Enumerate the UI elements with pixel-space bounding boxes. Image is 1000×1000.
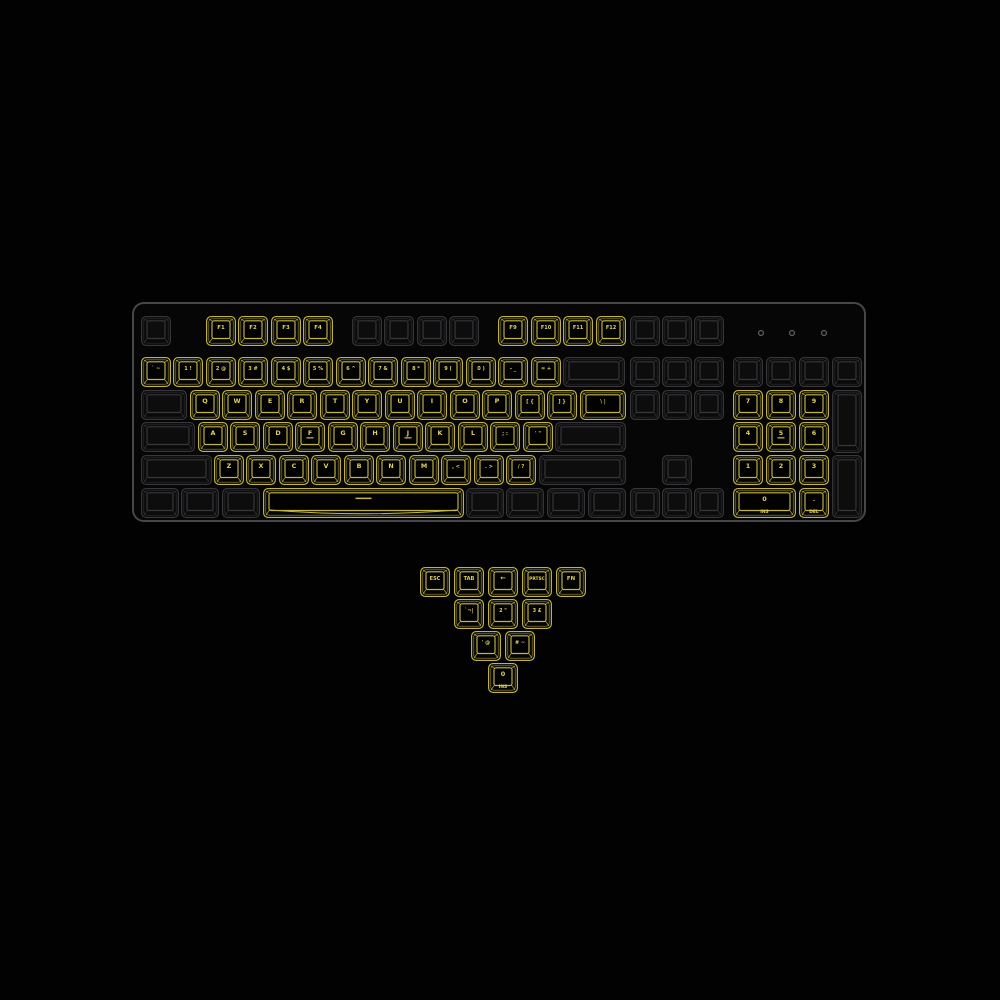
key-slash-legend: / ? bbox=[518, 464, 525, 470]
key-np-minus bbox=[833, 358, 862, 387]
key-semicolon: ; : bbox=[491, 423, 520, 452]
key-np0-sub-legend: INS bbox=[760, 509, 768, 515]
key-f9: F9 bbox=[499, 317, 528, 346]
key-space bbox=[264, 489, 464, 518]
key-x-grave-iso-legend: `¬| bbox=[465, 608, 474, 614]
key-np-dot-legend: . bbox=[813, 495, 815, 503]
key-grave: ` ~ bbox=[142, 358, 171, 387]
key-rbracket-legend: ] } bbox=[558, 399, 566, 405]
key-3: 3 # bbox=[239, 358, 268, 387]
key-1-legend: 1 ! bbox=[184, 366, 192, 372]
key-0: 0 ) bbox=[467, 358, 496, 387]
key-2-legend: 2 @ bbox=[216, 366, 226, 372]
key-x-grave-iso: `¬| bbox=[455, 600, 484, 629]
key-u-legend: U bbox=[397, 397, 402, 405]
key-e-legend: E bbox=[268, 397, 272, 405]
key-np8-legend: 8 bbox=[779, 397, 784, 405]
key-f2-legend: F2 bbox=[249, 325, 257, 331]
key-d-legend: D bbox=[275, 429, 280, 437]
key-f1-legend: F1 bbox=[217, 325, 225, 331]
key-backslash-legend: \ | bbox=[600, 399, 606, 405]
key-h-legend: H bbox=[372, 429, 377, 437]
key-x-hash-iso-legend: # ~ bbox=[515, 640, 525, 646]
key-w-legend: W bbox=[233, 397, 240, 405]
key-equals: = + bbox=[532, 358, 561, 387]
key-j: J bbox=[394, 423, 423, 452]
key-g-legend: G bbox=[340, 429, 345, 437]
key-c-legend: C bbox=[292, 462, 297, 470]
key-f10: F10 bbox=[532, 317, 561, 346]
key-z: Z bbox=[215, 456, 244, 485]
key-7: 7 & bbox=[369, 358, 398, 387]
key-equals-legend: = + bbox=[541, 366, 551, 372]
key-h: H bbox=[361, 423, 390, 452]
key-v: V bbox=[312, 456, 341, 485]
key-np5: 5 bbox=[767, 423, 796, 452]
key-f12: F12 bbox=[597, 317, 626, 346]
key-backslash: \ | bbox=[581, 391, 626, 420]
key-x-prtsc-legend: PRTSC bbox=[529, 576, 545, 582]
key-np2-legend: 2 bbox=[779, 462, 783, 470]
key-np2: 2 bbox=[767, 456, 796, 485]
key-np6: 6 bbox=[800, 423, 829, 452]
key-n: N bbox=[377, 456, 406, 485]
key-k: K bbox=[426, 423, 455, 452]
key-minus: - _ bbox=[499, 358, 528, 387]
key-f: F bbox=[296, 423, 325, 452]
key-rfn bbox=[507, 489, 544, 518]
key-x-2-iso-legend: 2 " bbox=[499, 608, 507, 614]
key-prtsc bbox=[631, 317, 660, 346]
key-np0-legend: 0 bbox=[762, 495, 767, 503]
key-np1: 1 bbox=[734, 456, 763, 485]
key-rbracket: ] } bbox=[548, 391, 577, 420]
key-b-legend: B bbox=[357, 462, 362, 470]
key-f6 bbox=[385, 317, 414, 346]
key-s: S bbox=[231, 423, 260, 452]
key-f11: F11 bbox=[564, 317, 593, 346]
key-enter bbox=[556, 423, 626, 452]
key-o-legend: O bbox=[462, 397, 468, 405]
key-rshift bbox=[540, 456, 626, 485]
key-np-div bbox=[767, 358, 796, 387]
key-q-legend: Q bbox=[202, 397, 208, 405]
key-np9: 9 bbox=[800, 391, 829, 420]
key-4-legend: 4 $ bbox=[282, 366, 291, 372]
key-v-legend: V bbox=[324, 462, 329, 470]
key-x-fn-legend: FN bbox=[567, 576, 576, 582]
key-lbracket-legend: [ { bbox=[526, 399, 534, 405]
key-f4: F4 bbox=[304, 317, 333, 346]
key-f4-legend: F4 bbox=[314, 325, 322, 331]
key-np6-legend: 6 bbox=[812, 429, 817, 437]
key-pgdn bbox=[695, 391, 724, 420]
key-3-legend: 3 # bbox=[248, 366, 257, 372]
key-np4-legend: 4 bbox=[746, 429, 751, 437]
key-period: . > bbox=[475, 456, 504, 485]
key-x: X bbox=[247, 456, 276, 485]
key-g: G bbox=[329, 423, 358, 452]
key-np1-legend: 1 bbox=[746, 462, 750, 470]
key-f9-legend: F9 bbox=[509, 325, 517, 331]
key-comma: , < bbox=[442, 456, 471, 485]
key-insert bbox=[631, 358, 660, 387]
key-tab bbox=[142, 391, 187, 420]
key-r-legend: R bbox=[300, 397, 305, 405]
key-1: 1 ! bbox=[174, 358, 203, 387]
key-z-legend: Z bbox=[227, 462, 232, 470]
key-np4: 4 bbox=[734, 423, 763, 452]
key-7-legend: 7 & bbox=[378, 366, 388, 372]
key-np-dot: .DEL bbox=[800, 489, 829, 518]
key-r: R bbox=[288, 391, 317, 420]
key-a: A bbox=[199, 423, 228, 452]
key-lwin bbox=[182, 489, 219, 518]
key-np-dot-sub-legend: DEL bbox=[809, 509, 819, 515]
key-m: M bbox=[410, 456, 439, 485]
key-grave-legend: ` ~ bbox=[152, 366, 160, 372]
key-9: 9 ( bbox=[434, 358, 463, 387]
key-np5-legend: 5 bbox=[779, 429, 783, 437]
key-b: B bbox=[345, 456, 374, 485]
key-x-backspace: ← bbox=[489, 568, 518, 597]
key-lctrl bbox=[142, 489, 179, 518]
key-comma-legend: , < bbox=[452, 464, 460, 470]
key-scrlk bbox=[663, 317, 692, 346]
key-f2: F2 bbox=[239, 317, 268, 346]
key-x-0-ins-sub-legend: INS bbox=[499, 684, 507, 690]
key-f-legend: F bbox=[308, 429, 312, 437]
key-u: U bbox=[386, 391, 415, 420]
key-menu bbox=[548, 489, 585, 518]
key-rctrl bbox=[589, 489, 626, 518]
key-np0: 0INS bbox=[734, 489, 796, 518]
key-pgup bbox=[695, 358, 724, 387]
key-x-fn: FN bbox=[557, 568, 586, 597]
key-y-legend: Y bbox=[364, 397, 370, 405]
key-np7: 7 bbox=[734, 391, 763, 420]
key-t-legend: T bbox=[333, 397, 338, 405]
key-x-quote-iso-legend: ' @ bbox=[482, 640, 490, 646]
key-np9-legend: 9 bbox=[812, 397, 817, 405]
key-np3: 3 bbox=[800, 456, 829, 485]
key-f1: F1 bbox=[207, 317, 236, 346]
key-x-0-ins: 0INS bbox=[489, 664, 518, 693]
key-f12-legend: F12 bbox=[606, 325, 617, 331]
key-8: 8 * bbox=[402, 358, 431, 387]
key-period-legend: . > bbox=[485, 464, 493, 470]
key-q: Q bbox=[191, 391, 220, 420]
key-end bbox=[663, 391, 692, 420]
key-lshift bbox=[142, 456, 212, 485]
key-np-enter bbox=[833, 456, 862, 518]
key-x-prtsc: PRTSC bbox=[523, 568, 552, 597]
key-delete bbox=[631, 391, 660, 420]
key-0-legend: 0 ) bbox=[477, 366, 485, 372]
key-p: P bbox=[483, 391, 512, 420]
key-pause bbox=[695, 317, 724, 346]
key-minus-legend: - _ bbox=[510, 366, 517, 372]
key-l: L bbox=[459, 423, 488, 452]
key-p-legend: P bbox=[495, 397, 500, 405]
key-np3-legend: 3 bbox=[812, 462, 816, 470]
key-x-tab-legend: TAB bbox=[464, 576, 475, 582]
key-x-3-iso: 3 £ bbox=[523, 600, 552, 629]
key-o: O bbox=[451, 391, 480, 420]
key-x-esc-legend: ESC bbox=[430, 576, 441, 582]
keyboard-illustration: F1F2F3F4F9F10F11F12` ~1 !2 @3 #4 $5 %6 ^… bbox=[0, 0, 1000, 1000]
key-f3: F3 bbox=[272, 317, 301, 346]
key-d: D bbox=[264, 423, 293, 452]
key-np-plus bbox=[833, 391, 862, 453]
key-f7 bbox=[418, 317, 447, 346]
key-y: Y bbox=[353, 391, 382, 420]
key-home bbox=[663, 358, 692, 387]
key-x-3-iso-legend: 3 £ bbox=[533, 608, 542, 614]
key-right bbox=[695, 489, 724, 518]
key-down bbox=[663, 489, 692, 518]
key-4: 4 $ bbox=[272, 358, 301, 387]
product-render: F1F2F3F4F9F10F11F12` ~1 !2 @3 #4 $5 %6 ^… bbox=[0, 0, 1000, 1000]
key-x-tab: TAB bbox=[455, 568, 484, 597]
key-6-legend: 6 ^ bbox=[346, 366, 355, 372]
key-lbracket: [ { bbox=[516, 391, 545, 420]
key-esc bbox=[142, 317, 171, 346]
key-6: 6 ^ bbox=[337, 358, 366, 387]
key-l-legend: L bbox=[471, 429, 475, 437]
key-f8 bbox=[450, 317, 479, 346]
key-numlock bbox=[734, 358, 763, 387]
key-t: T bbox=[321, 391, 350, 420]
key-f11-legend: F11 bbox=[573, 325, 584, 331]
key-np-mul bbox=[800, 358, 829, 387]
key-np7-legend: 7 bbox=[746, 397, 750, 405]
key-5: 5 % bbox=[304, 358, 333, 387]
key-x-esc: ESC bbox=[421, 568, 450, 597]
key-j-legend: J bbox=[406, 429, 409, 437]
key-quote: ' " bbox=[524, 423, 553, 452]
key-s-legend: S bbox=[243, 429, 248, 437]
key-i: I bbox=[418, 391, 447, 420]
key-backspace bbox=[564, 358, 625, 387]
key-m-legend: M bbox=[421, 462, 427, 470]
key-x-hash-iso: # ~ bbox=[506, 632, 535, 661]
key-a-legend: A bbox=[211, 429, 216, 437]
key-5-legend: 5 % bbox=[313, 366, 323, 372]
key-x-0-ins-legend: 0 bbox=[501, 670, 506, 678]
key-caps bbox=[142, 423, 195, 452]
key-f10-legend: F10 bbox=[541, 325, 552, 331]
key-x-2-iso: 2 " bbox=[489, 600, 518, 629]
key-left bbox=[631, 489, 660, 518]
key-x-quote-iso: ' @ bbox=[472, 632, 501, 661]
extra-keycaps: ESCTAB←PRTSCFN`¬|2 "3 £' @# ~0INS bbox=[421, 568, 586, 693]
key-n-legend: N bbox=[388, 462, 393, 470]
key-quote-legend: ' " bbox=[535, 431, 541, 437]
key-f3-legend: F3 bbox=[282, 325, 290, 331]
key-np8: 8 bbox=[767, 391, 796, 420]
key-ralt bbox=[467, 489, 504, 518]
key-semicolon-legend: ; : bbox=[502, 431, 508, 437]
key-x-legend: X bbox=[259, 462, 264, 470]
key-slash: / ? bbox=[507, 456, 536, 485]
key-f5 bbox=[353, 317, 382, 346]
key-9-legend: 9 ( bbox=[444, 366, 452, 372]
key-e: E bbox=[256, 391, 285, 420]
key-up bbox=[663, 456, 692, 485]
key-lalt bbox=[223, 489, 260, 518]
key-2: 2 @ bbox=[207, 358, 236, 387]
key-8-legend: 8 * bbox=[412, 366, 420, 372]
key-w: W bbox=[223, 391, 252, 420]
key-c: C bbox=[280, 456, 309, 485]
key-x-backspace-legend: ← bbox=[500, 574, 505, 582]
key-i-legend: I bbox=[431, 397, 433, 405]
